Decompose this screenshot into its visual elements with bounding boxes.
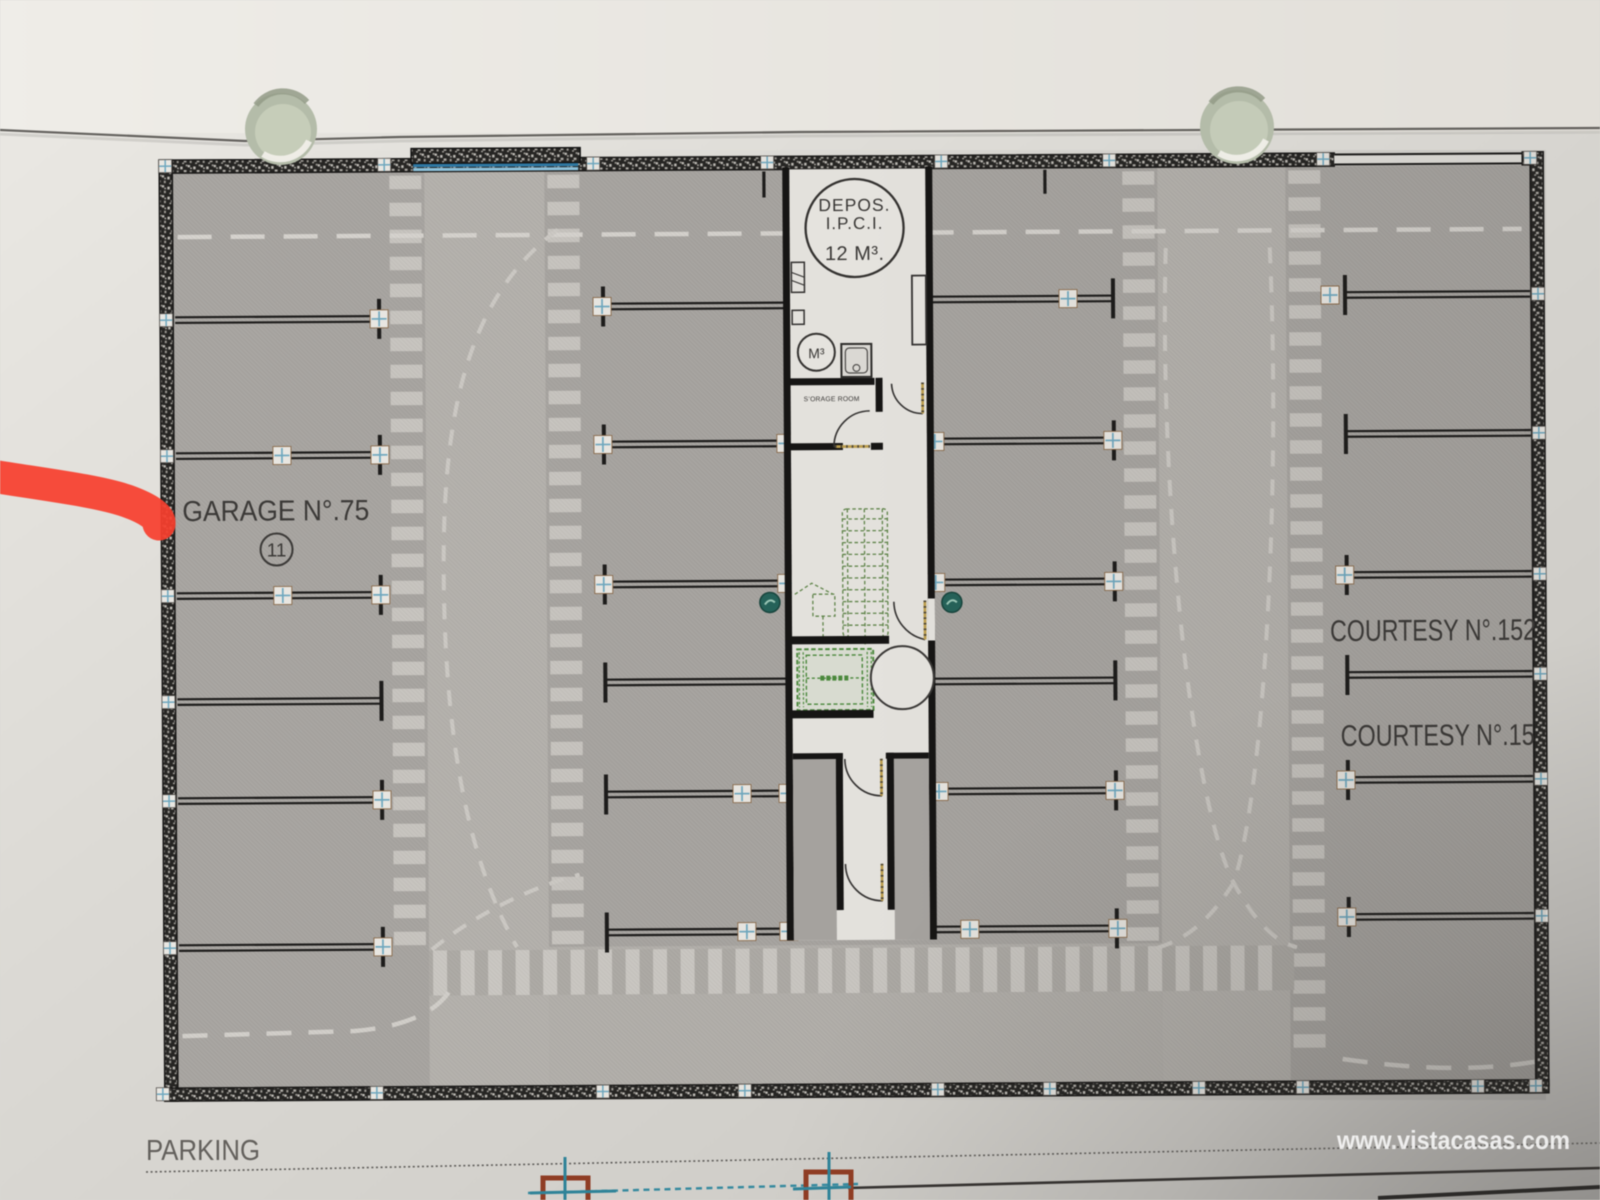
svg-text:PARKING: PARKING (146, 1135, 260, 1167)
svg-text:www.vistacasas.com: www.vistacasas.com (1336, 1125, 1570, 1155)
